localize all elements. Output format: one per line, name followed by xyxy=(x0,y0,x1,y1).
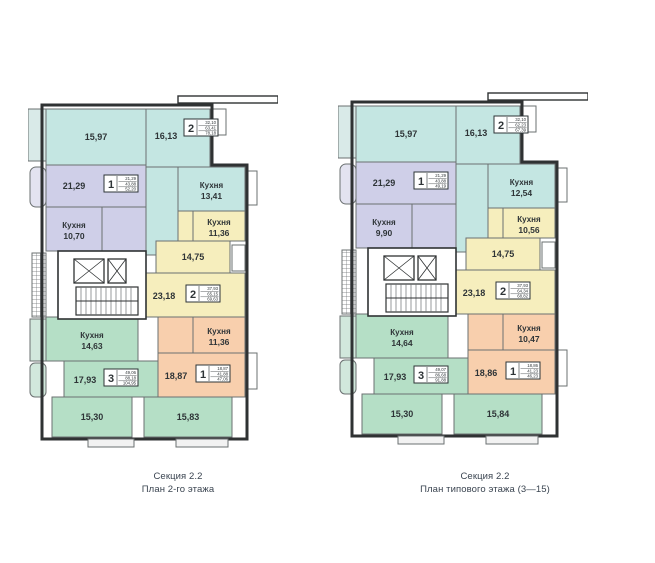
kitchen-name-label: Кухня xyxy=(80,331,104,340)
kitchen-area-label: 11,36 xyxy=(209,228,230,238)
kitchen-area-label: 13,41 xyxy=(201,191,223,201)
roof-slab-strip xyxy=(488,93,588,100)
room-area-label: 21,29 xyxy=(373,178,396,188)
room-area-label: 18,87 xyxy=(165,371,188,381)
kitchen-area-label: 14,63 xyxy=(81,341,103,351)
room-area-label: 14,75 xyxy=(182,252,205,262)
badge-room-count: 2 xyxy=(500,286,506,298)
kitchen-name-label: Кухня xyxy=(517,215,541,224)
room-area-label: 17,93 xyxy=(74,375,97,385)
balcony-left-green1 xyxy=(30,319,46,361)
kitchen-name-label: Кухня xyxy=(200,181,224,190)
apartment-badge-top2: 232,1063,4178,18 xyxy=(184,119,218,136)
apartment-badge-yel2: 237,9365,1569,63 xyxy=(186,285,220,302)
balcony-left-green2 xyxy=(340,360,356,394)
room-hall_e xyxy=(158,317,193,353)
badge-room-count: 1 xyxy=(200,369,206,381)
badge-room-count: 2 xyxy=(190,289,196,301)
badge-room-count: 3 xyxy=(418,370,424,382)
badge-area-line: 104,95 xyxy=(123,381,137,386)
kitchen-name-label: Кухня xyxy=(372,218,396,227)
badge-room-count: 1 xyxy=(510,366,516,378)
kitchen-area-label: 12,54 xyxy=(511,188,533,198)
kitchen-name-label: Кухня xyxy=(517,324,541,333)
entrance-porch xyxy=(176,439,228,447)
apartment-badge-lav1: 121,2943,8849,19 xyxy=(414,172,448,189)
kitchen-name-label: Кухня xyxy=(390,328,414,337)
balcony-left-hatch xyxy=(32,253,46,317)
room-hall_e xyxy=(468,314,503,350)
balcony-right-yellow xyxy=(232,245,245,271)
badge-area-line: 52,20 xyxy=(125,187,136,192)
kitchen-area-label: 9,90 xyxy=(376,228,393,238)
caption-floor: План типового этажа (3—15) xyxy=(390,483,580,496)
room-area-label: 15,83 xyxy=(177,412,200,422)
roof-slab-strip xyxy=(178,96,278,103)
apartment-badge-org1: 118,8641,2346,23 xyxy=(506,362,540,379)
caption-section: Секция 2.2 xyxy=(98,470,258,483)
balcony-left-lavender xyxy=(30,167,46,207)
badge-area-line: 91,88 xyxy=(435,378,446,383)
balcony-left-hatch xyxy=(342,250,356,314)
badge-room-count: 2 xyxy=(498,120,504,132)
badge-area-line: 46,23 xyxy=(527,374,538,379)
badge-area-line: 78,18 xyxy=(205,131,216,136)
entrance-porch xyxy=(486,436,538,444)
room-area-label: 14,75 xyxy=(492,249,515,259)
kitchen-area-label: 11,36 xyxy=(209,337,230,347)
room-hall_b xyxy=(412,204,456,248)
room-area-label: 16,13 xyxy=(465,128,488,138)
room-area-label: 15,84 xyxy=(487,409,510,419)
plan-caption-2nd-floor: Секция 2.2 План 2-го этажа xyxy=(98,470,258,496)
kitchen-area-label: 10,70 xyxy=(63,231,85,241)
entrance-porch xyxy=(398,436,444,444)
room-area-label: 15,97 xyxy=(85,132,108,142)
room-area-label: 21,29 xyxy=(63,181,86,191)
badge-area-line: 47,06 xyxy=(217,377,228,382)
kitchen-area-label: 10,56 xyxy=(518,225,540,235)
room-hall_b xyxy=(102,207,146,251)
apartment-badge-lav1: 121,2943,8852,20 xyxy=(104,175,138,192)
kitchen-area-label: 14,64 xyxy=(391,338,413,348)
room-area-label: 15,30 xyxy=(81,412,104,422)
floor-plans-canvas: 15,9716,13Кухня13,4121,29Кухня10,70Кухня… xyxy=(0,0,655,563)
apartment-badge-yel2: 237,9364,3468,82 xyxy=(496,282,530,299)
badge-area-line: 67,39 xyxy=(515,128,526,133)
apartment-badge-org1: 118,8741,8847,06 xyxy=(196,365,230,382)
room-area-label: 18,86 xyxy=(475,368,498,378)
kitchen-area-label: 10,47 xyxy=(518,334,540,344)
apartment-badge-grn3: 349,0688,18104,95 xyxy=(104,369,138,386)
room-area-label: 23,18 xyxy=(463,288,486,298)
caption-section: Секция 2.2 xyxy=(390,470,580,483)
badge-area-line: 68,82 xyxy=(517,294,528,299)
badge-room-count: 3 xyxy=(108,373,114,385)
floor-plan-2nd-floor: 15,9716,13Кухня13,4121,29Кухня10,70Кухня… xyxy=(28,95,278,468)
apartment-badge-top2: 232,1062,2367,39 xyxy=(494,116,528,133)
badge-area-line: 69,63 xyxy=(207,297,218,302)
room-area-label: 23,18 xyxy=(153,291,176,301)
balcony-right-yellow xyxy=(542,242,555,268)
badge-room-count: 1 xyxy=(418,176,424,188)
balcony-left-green2 xyxy=(30,363,46,397)
room-area-label: 15,97 xyxy=(395,129,418,139)
plan-caption-typical-floor: Секция 2.2 План типового этажа (3—15) xyxy=(390,470,580,496)
kitchen-name-label: Кухня xyxy=(207,218,231,227)
badge-room-count: 2 xyxy=(188,123,194,135)
kitchen-name-label: Кухня xyxy=(207,327,231,336)
badge-room-count: 1 xyxy=(108,179,114,191)
balcony-left-lavender xyxy=(340,164,356,204)
badge-area-line: 49,19 xyxy=(435,184,446,189)
room-area-label: 17,93 xyxy=(384,372,407,382)
kitchen-name-label: Кухня xyxy=(510,178,534,187)
room-area-label: 15,30 xyxy=(391,409,414,419)
kitchen-name-label: Кухня xyxy=(62,221,86,230)
floor-plan-typical-floor: 15,9716,13Кухня12,5421,29Кухня9,90Кухня1… xyxy=(338,92,588,465)
balcony-left-green1 xyxy=(340,316,356,358)
caption-floor: План 2-го этажа xyxy=(98,483,258,496)
apartment-badge-grn3: 349,0786,6891,88 xyxy=(414,366,448,383)
room-area-label: 16,13 xyxy=(155,131,178,141)
entrance-porch xyxy=(88,439,134,447)
